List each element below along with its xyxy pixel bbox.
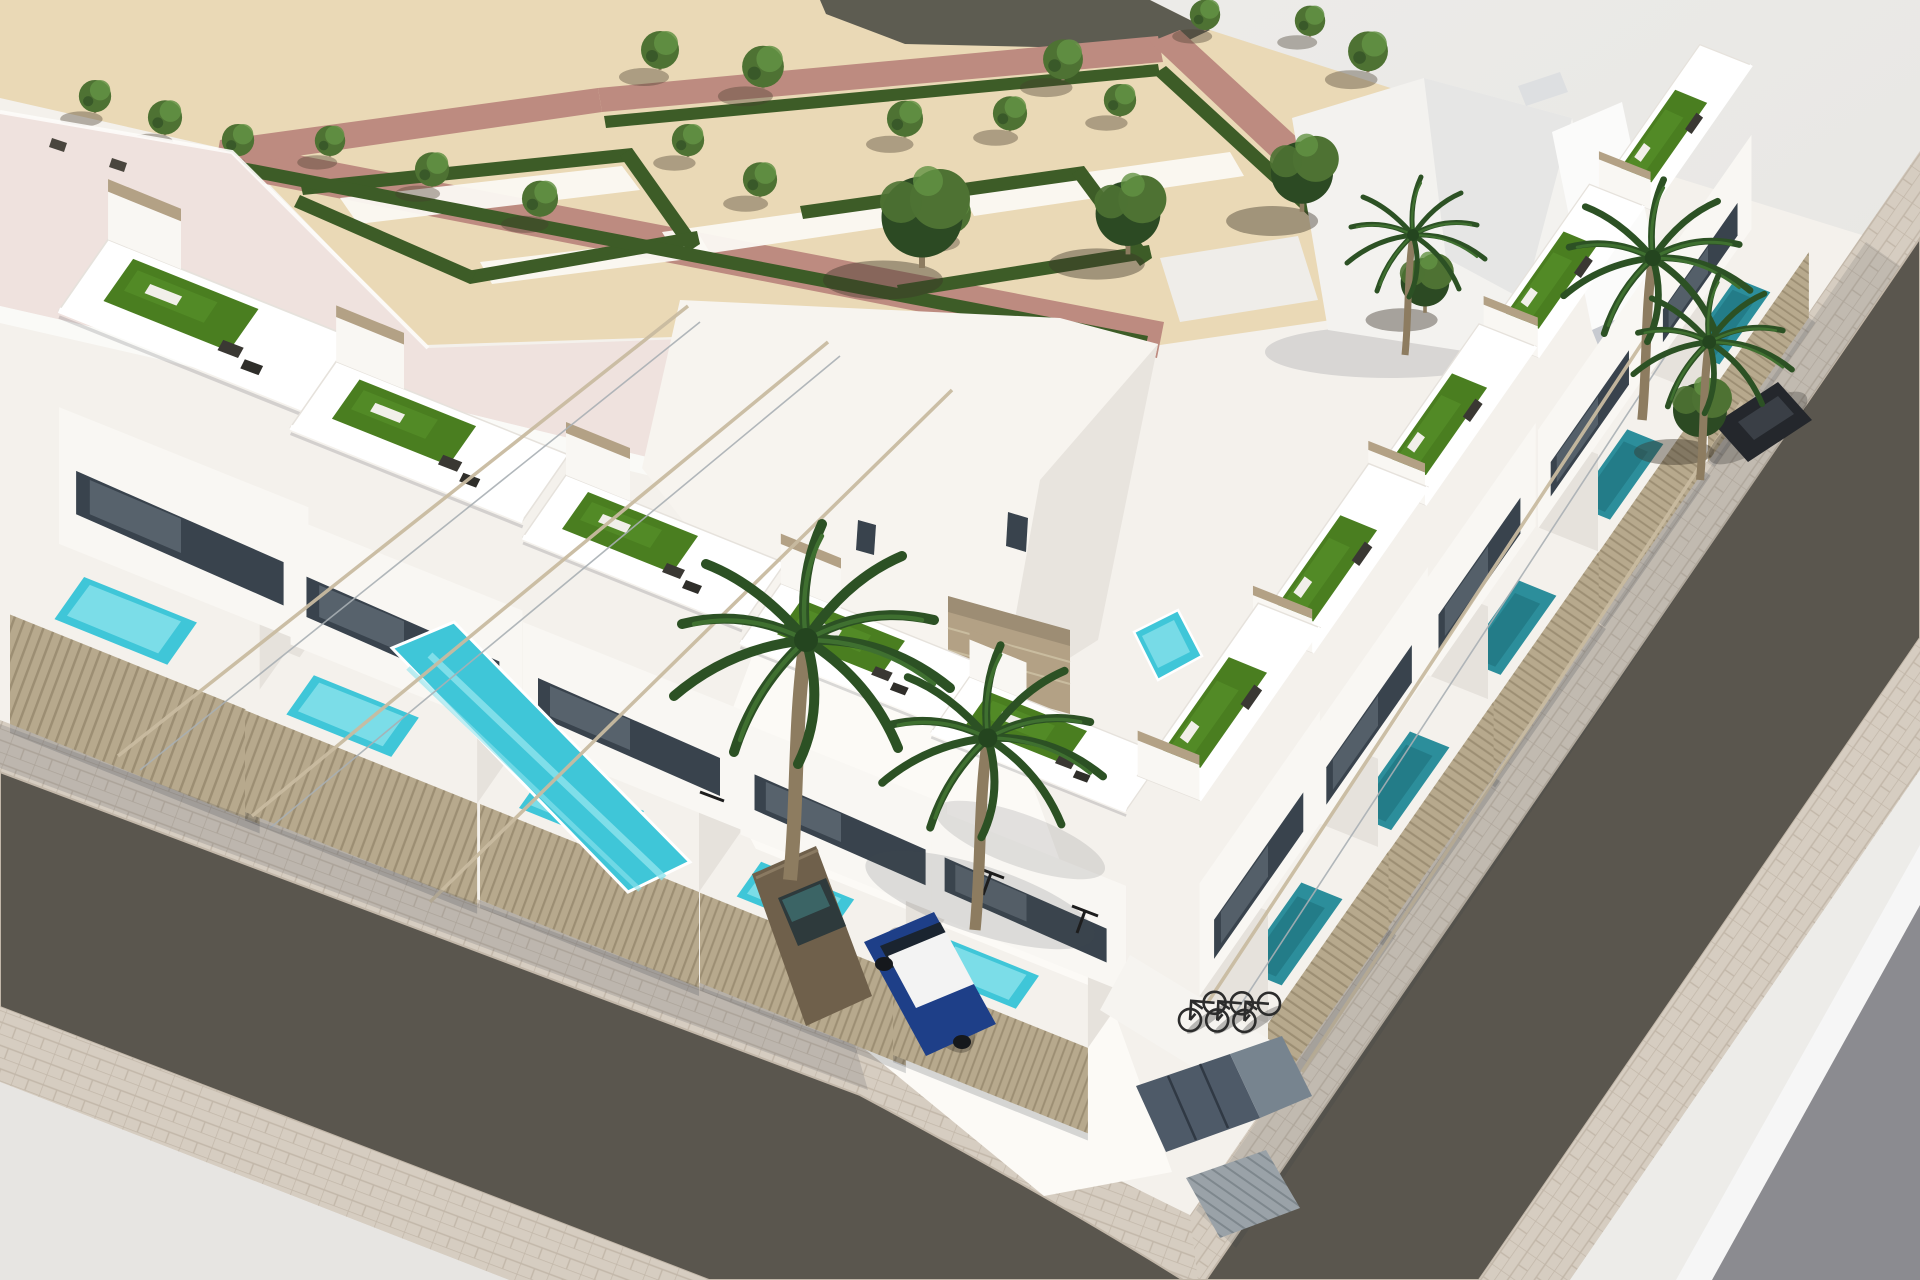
car-wheel — [875, 957, 893, 971]
car-wheel — [953, 1035, 971, 1049]
window-slot — [856, 520, 876, 555]
architectural-render — [0, 0, 1920, 1280]
window-slot — [1006, 512, 1028, 552]
